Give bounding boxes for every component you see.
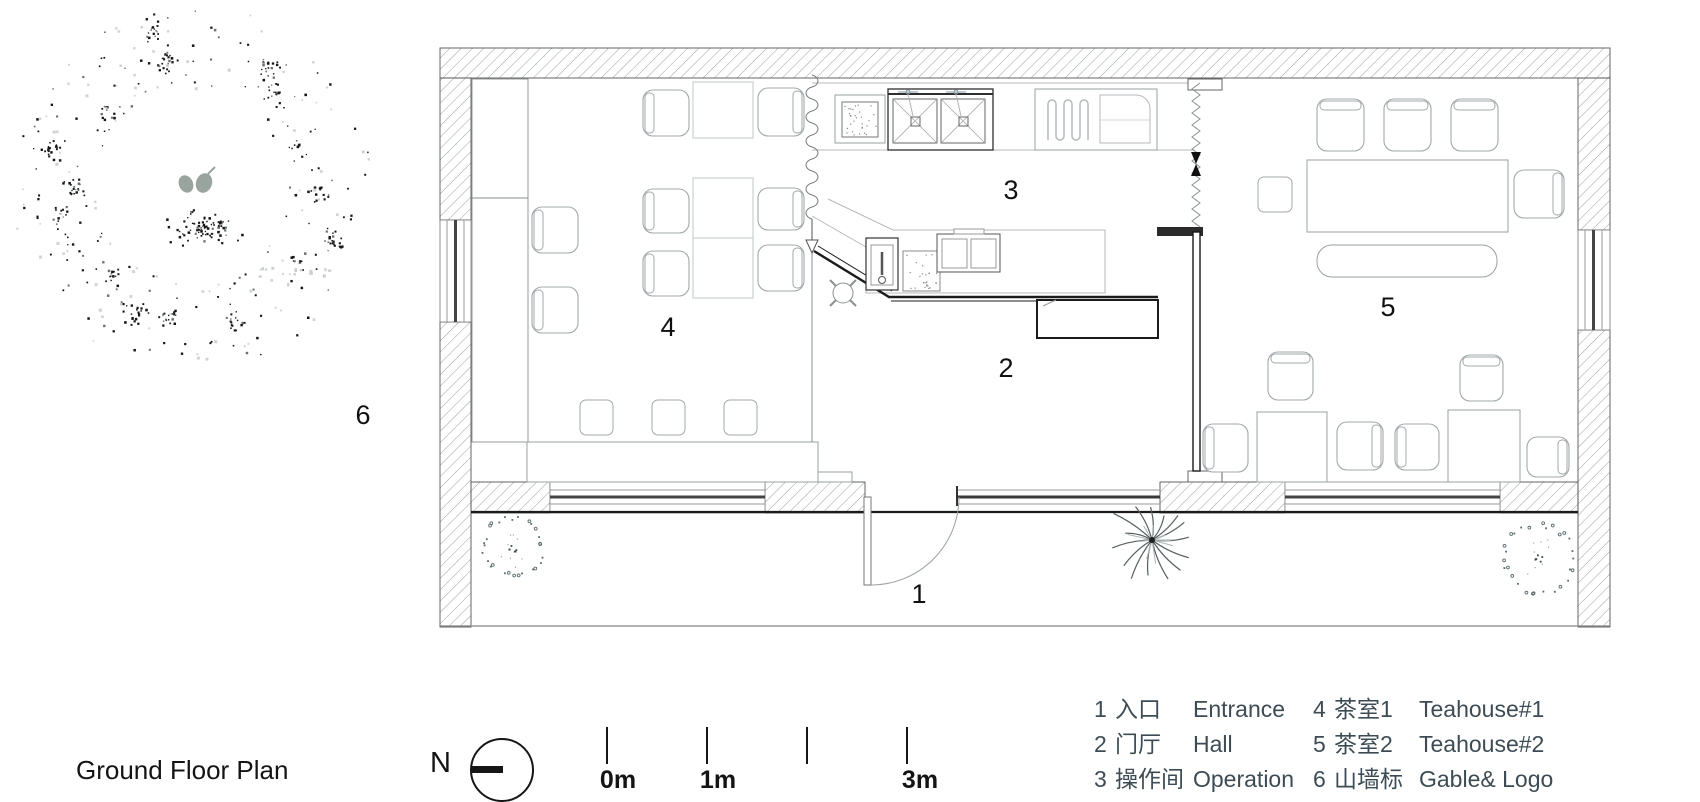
room-label-teahouse2: 5 <box>1377 292 1399 323</box>
legend-entry-entrance: 1 入口 Entrance <box>1094 690 1294 720</box>
room-label-hall: 2 <box>995 353 1017 384</box>
legend-entry-teahouse1: 4 茶室1 Teahouse#1 <box>1313 690 1553 720</box>
window-left <box>440 220 471 322</box>
legend-num: 1 <box>1094 696 1115 723</box>
legend-column-1: 1 入口 Entrance 2 门厅 Hall 3 操作间 Operation <box>1094 690 1294 790</box>
legend-column-2: 4 茶室1 Teahouse#1 5 茶室2 Teahouse#2 6 山墙标识… <box>1313 690 1553 790</box>
legend-num: 6 <box>1313 766 1334 793</box>
legend-en: Entrance <box>1193 696 1285 723</box>
scale-label-3m: 3m <box>890 766 950 795</box>
legend-en: Operation <box>1193 766 1294 793</box>
legend-num: 5 <box>1313 731 1334 758</box>
room-label-teahouse1: 4 <box>657 312 679 343</box>
exterior-walls <box>440 48 1610 627</box>
gable-logo-stipple <box>16 11 370 361</box>
legend-zh: 门厅 <box>1115 725 1193 759</box>
legend-entry-teahouse2: 5 茶室2 Teahouse#2 <box>1313 725 1553 755</box>
north-arrow-icon <box>471 739 533 801</box>
legend-entry-operation: 3 操作间 Operation <box>1094 760 1294 790</box>
north-label: N <box>430 747 451 780</box>
terrace-plants <box>482 507 1575 595</box>
room-label-gable: 6 <box>352 400 374 431</box>
window-right <box>1578 230 1610 330</box>
legend-en: Hall <box>1193 731 1233 758</box>
floor-plan-sheet: 1 2 3 4 5 6 Ground Floor Plan N 0m 1m 3m… <box>0 0 1700 802</box>
partition-room5 <box>1188 79 1222 482</box>
legend-en: Teahouse#2 <box>1419 731 1544 758</box>
legend-entry-gable: 6 山墙标识 Gable& Logo <box>1313 760 1553 790</box>
scale-bar <box>607 727 907 764</box>
legend-entry-hall: 2 门厅 Hall <box>1094 725 1294 755</box>
legend-zh: 山墙标识 <box>1334 760 1419 802</box>
legend-en: Gable& Logo <box>1419 766 1553 793</box>
legend-en: Teahouse#1 <box>1419 696 1544 723</box>
window-bottom-right <box>1285 482 1500 513</box>
legend-zh: 茶室1 <box>1334 690 1419 724</box>
scale-label-0m: 0m <box>588 766 648 795</box>
legend-num: 4 <box>1313 696 1334 723</box>
entrance-door <box>864 497 959 585</box>
room-label-operation: 3 <box>1000 175 1022 206</box>
room-label-entrance: 1 <box>908 579 930 610</box>
page-title: Ground Floor Plan <box>76 755 288 786</box>
legend-zh: 操作间 <box>1115 760 1193 794</box>
legend-num: 3 <box>1094 766 1115 793</box>
room3-kitchen <box>806 75 1203 338</box>
chairs <box>532 88 1569 477</box>
legend-num: 2 <box>1094 731 1115 758</box>
floor-plan-drawing <box>0 0 1700 802</box>
scale-label-1m: 1m <box>688 766 748 795</box>
legend-zh: 入口 <box>1115 690 1193 724</box>
window-bottom-left <box>550 482 765 513</box>
legend-zh: 茶室2 <box>1334 725 1419 759</box>
hall-stool <box>830 280 856 306</box>
